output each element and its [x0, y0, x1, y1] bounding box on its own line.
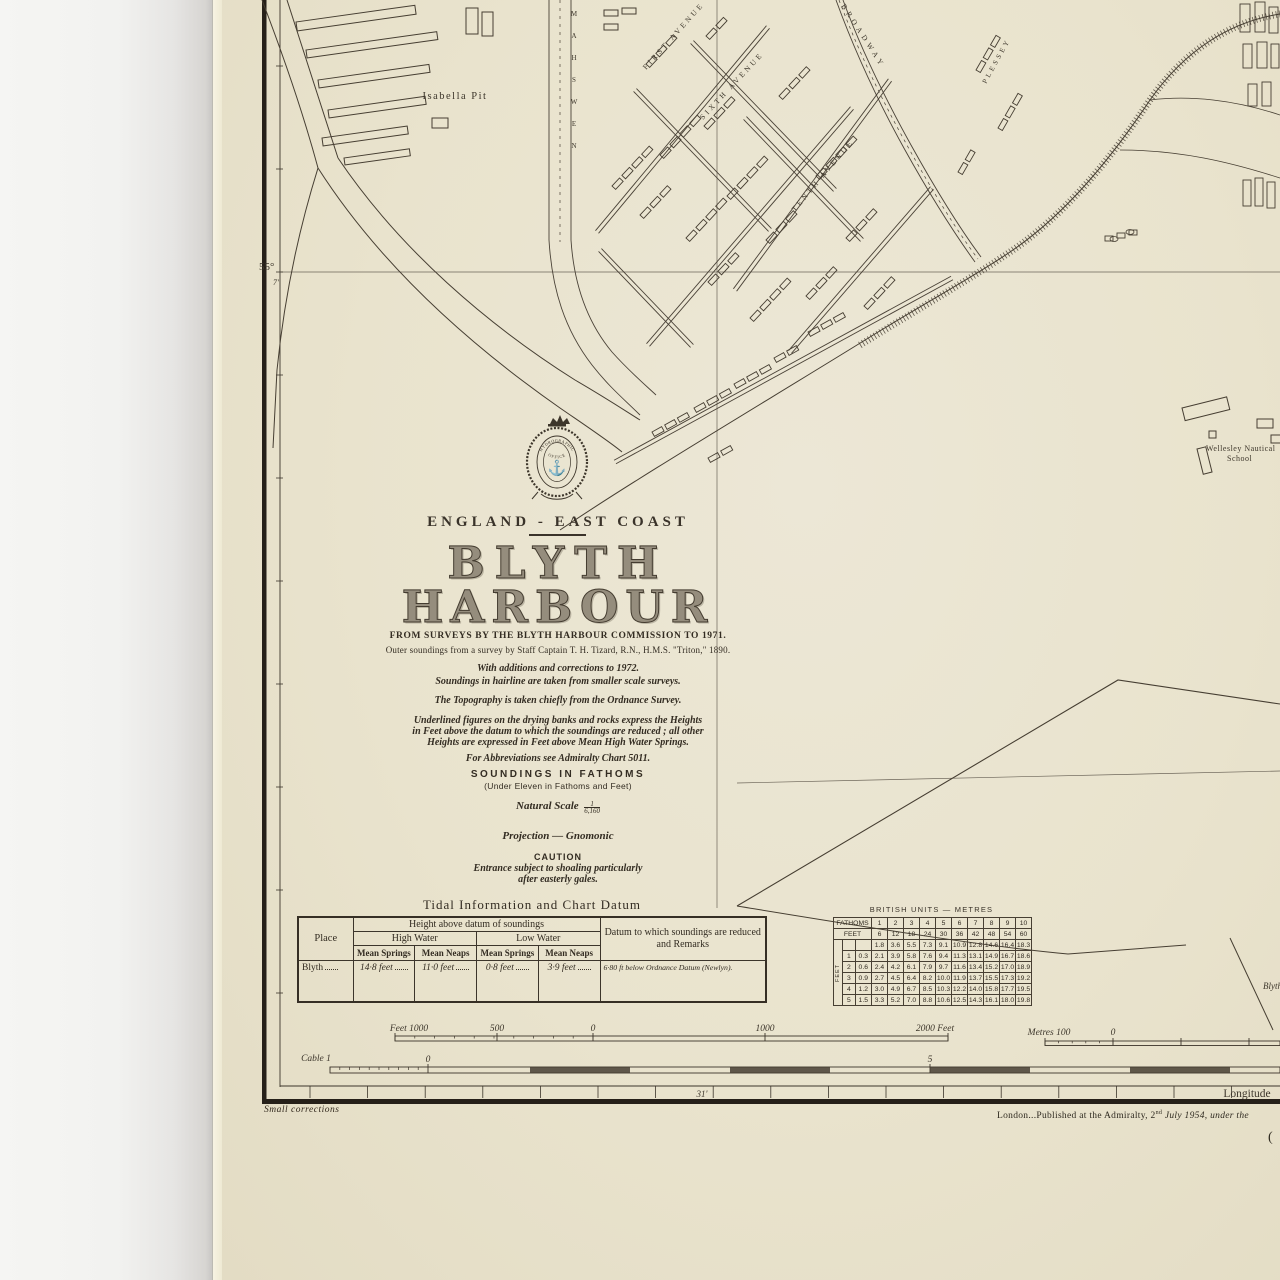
conv-cell: 14.9 — [984, 951, 1000, 962]
conv-cell: 18 — [904, 929, 920, 940]
conv-cell: 12.2 — [952, 984, 968, 995]
conv-cell: 16.4 — [1000, 940, 1016, 951]
conv-cell: 6.1 — [904, 962, 920, 973]
tidal-hw-springs-value: 14·8 feet — [353, 960, 415, 1002]
conv-cell: 8.2 — [920, 973, 936, 984]
conv-cell: 19.5 — [1016, 984, 1032, 995]
conv-cell: 2.4 — [872, 962, 888, 973]
svg-text:OFFICE: OFFICE — [547, 452, 566, 459]
street-lines — [595, 26, 952, 464]
conv-cell: 0.9 — [855, 973, 871, 984]
wellesley-label-1: Wellesley Nautical — [1206, 444, 1276, 453]
newsham-letter: H — [571, 54, 576, 62]
conv-cell: 17.0 — [1000, 962, 1016, 973]
conv-cell: 7.6 — [920, 951, 936, 962]
conv-cell: 2 — [888, 918, 904, 929]
conv-cell: 10.0 — [936, 973, 952, 984]
source-line-1: FROM SURVEYS BY THE BLYTH HARBOUR COMMIS… — [340, 631, 776, 641]
conv-cell: 5.5 — [904, 940, 920, 951]
isabella-pit-label: Isabella Pit — [423, 91, 488, 102]
chart-photo: HYDROGRAPHIC OFFICE ⚓ Isabella Pit MAHSW… — [0, 0, 1280, 1280]
conv-cell: 1 — [872, 918, 888, 929]
tidal-col-datum: Datum to which soundings are reduced and… — [600, 917, 766, 960]
tidal-col-mean-springs-lw: Mean Springs — [477, 945, 539, 960]
conv-cell: 5 — [936, 918, 952, 929]
soundings-heading: SOUNDINGS IN FATHOMS — [340, 769, 776, 780]
newsham-letter: E — [572, 120, 576, 128]
newsham-letter: M — [571, 10, 578, 18]
conv-cell: 16.7 — [1000, 951, 1016, 962]
terrace-row — [652, 413, 689, 437]
conv-cell: 17.3 — [1000, 973, 1016, 984]
longitude-tick-label: 31' — [696, 1089, 709, 1099]
caution-heading: CAUTION — [340, 852, 776, 862]
tidal-datum-value: 6·80 ft below Ordnance Datum (Newlyn). — [600, 960, 766, 1002]
misc-buildings — [1105, 2, 1279, 241]
chart-sheet: HYDROGRAPHIC OFFICE ⚓ Isabella Pit MAHSW… — [222, 0, 1280, 1280]
conv-cell: 12.8 — [968, 940, 984, 951]
newsham-letter: W — [571, 98, 578, 106]
conv-cell: 1.8 — [872, 940, 888, 951]
conv-cell: 30 — [936, 929, 952, 940]
terrace-row — [706, 17, 727, 39]
conv-cell: 4 — [843, 984, 855, 995]
terrace-row — [640, 186, 671, 219]
heights-note-1: Underlined figures on the drying banks a… — [392, 715, 724, 726]
latitude-minutes-label: 7' — [273, 278, 279, 287]
conv-cell: 14.0 — [968, 984, 984, 995]
conv-cell: 18.9 — [1016, 962, 1032, 973]
anchor-icon: ⚓ — [548, 459, 567, 477]
corrections-line-2: Soundings in hairline are taken from sma… — [340, 676, 776, 687]
terrace-row — [998, 93, 1022, 130]
scale-bar-labels: Feet 1000 500 0 1000 2000 Feet Metres 10… — [301, 1024, 1116, 1065]
first-avenue-label: FIRST AVENUE — [641, 0, 706, 71]
tidal-col-mean-neaps-hw: Mean Neaps — [415, 945, 477, 960]
conv-cell: 15.2 — [984, 962, 1000, 973]
paren-fragment: ( — [1268, 1130, 1273, 1146]
heights-note-3: Heights are expressed in Feet above Mean… — [392, 737, 724, 748]
tidal-lw-springs-value: 0·8 feet — [477, 960, 539, 1002]
tidal-col-mean-neaps-lw: Mean Neaps — [538, 945, 600, 960]
feet-2000-label: 2000 Feet — [916, 1024, 955, 1034]
region-label: ENGLAND - EAST COAST — [380, 514, 736, 531]
terrace-row — [750, 278, 791, 321]
tidal-col-low-water: Low Water — [477, 931, 601, 945]
conv-cell: 5.2 — [888, 995, 904, 1006]
conversion-table: FATHOMS12345678910FEET612182430364248546… — [833, 917, 1032, 1006]
conv-cell: 14.6 — [984, 940, 1000, 951]
svg-text:HYDROGRAPHIC: HYDROGRAPHIC — [538, 438, 576, 452]
conv-cell — [843, 940, 855, 951]
conv-cell: 3.0 — [872, 984, 888, 995]
conv-cell: 12 — [888, 929, 904, 940]
conv-cell: 4.5 — [888, 973, 904, 984]
building-terraces — [612, 17, 1022, 462]
conv-cell: 9 — [1000, 918, 1016, 929]
terrace-row — [864, 277, 895, 310]
tidal-col-mean-springs-hw: Mean Springs — [353, 945, 415, 960]
conv-cell: 6.7 — [904, 984, 920, 995]
corrections-line-1: With additions and corrections to 1972. — [340, 663, 776, 674]
terrace-row — [779, 67, 810, 100]
projection-note: Projection — Gnomonic — [340, 830, 776, 842]
conv-cell: 10 — [1016, 918, 1032, 929]
conv-cell: 0.3 — [855, 951, 871, 962]
conv-fathoms-label: FATHOMS — [834, 918, 872, 929]
conv-cell: 8 — [984, 918, 1000, 929]
conv-cell: 11.9 — [952, 973, 968, 984]
natural-scale: Natural Scale 16,160 — [340, 800, 776, 814]
terrace-row — [612, 146, 653, 189]
latitude-degrees-label: 55° — [259, 261, 274, 273]
conv-cell: 3.3 — [872, 995, 888, 1006]
scale-fraction: 16,160 — [584, 801, 600, 814]
conv-cell: 42 — [968, 929, 984, 940]
conv-cell: 7.3 — [920, 940, 936, 951]
conv-cell: 9.7 — [936, 962, 952, 973]
conv-cell: 1 — [843, 951, 855, 962]
tidal-data-row: Blyth 14·8 feet 11·0 feet 0·8 feet 3·9 f… — [298, 960, 766, 1002]
tidal-col-height-group: Height above datum of soundings — [353, 917, 600, 931]
railway-hatching — [860, 14, 1280, 345]
metres-0-label: 0 — [1111, 1028, 1116, 1038]
conv-cell: 2.1 — [872, 951, 888, 962]
source-line-2: Outer soundings from a survey by Staff C… — [340, 645, 776, 655]
tidal-lw-neaps-value: 3·9 feet — [538, 960, 600, 1002]
tidal-table-title: Tidal Information and Chart Datum — [382, 897, 682, 913]
conversion-table-title: BRITISH UNITS — METRES — [833, 905, 1030, 914]
cable-5-label: 5 — [928, 1055, 933, 1065]
conv-cell: 18.3 — [1016, 940, 1032, 951]
conv-cell: 48 — [984, 929, 1000, 940]
conv-cell: 11.3 — [952, 951, 968, 962]
conv-cell: 17.7 — [1000, 984, 1016, 995]
conv-cell: 8.5 — [920, 984, 936, 995]
crown-icon — [550, 415, 570, 424]
conv-cell: 18.6 — [1016, 951, 1032, 962]
conv-cell: 6.4 — [904, 973, 920, 984]
conv-cell: 19.2 — [1016, 973, 1032, 984]
conv-cell: 1.2 — [855, 984, 871, 995]
wall-background — [0, 0, 212, 1280]
terrace-row — [774, 346, 799, 363]
caution-line-2: after easterly gales. — [430, 874, 686, 885]
terrace-row — [806, 267, 837, 300]
publication-note: London...Published at the Admiralty, 2nd… — [997, 1110, 1280, 1121]
conv-cell: 6 — [952, 918, 968, 929]
conv-cell: 24 — [920, 929, 936, 940]
newsham-letter: S — [572, 76, 576, 84]
cable-label: Cable 1 — [301, 1054, 331, 1064]
conv-cell: 3.9 — [888, 951, 904, 962]
feet-1000r-label: 1000 — [756, 1024, 775, 1034]
conv-cell: 5.8 — [904, 951, 920, 962]
railway-lines — [262, 0, 1280, 530]
region-underline — [529, 534, 586, 536]
terrace-row — [708, 253, 739, 286]
conv-cell: 4.2 — [888, 962, 904, 973]
paper-edge — [212, 0, 222, 1280]
terrace-row — [708, 446, 733, 463]
wellesley-label-2: School — [1227, 454, 1253, 463]
conv-cell: 14.3 — [968, 995, 984, 1006]
conv-cell: 11.6 — [952, 962, 968, 973]
feet-500-label: 500 — [490, 1024, 505, 1034]
conv-cell: 9.1 — [936, 940, 952, 951]
conv-cell: 5 — [843, 995, 855, 1006]
conv-cell: 9.4 — [936, 951, 952, 962]
conv-cell: 13.7 — [968, 973, 984, 984]
conv-cell: 15.5 — [984, 973, 1000, 984]
conv-cell: 15.8 — [984, 984, 1000, 995]
conv-cell: 7.0 — [904, 995, 920, 1006]
scale-bars — [330, 1033, 1280, 1073]
conv-cell: 10.6 — [936, 995, 952, 1006]
terrace-row — [694, 389, 731, 413]
abbreviations-note: For Abbreviations see Admiralty Chart 50… — [340, 753, 776, 764]
conv-cell: 7.9 — [920, 962, 936, 973]
topography-note: The Topography is taken chiefly from the… — [340, 695, 776, 706]
soundings-subheading: (Under Eleven in Fathoms and Feet) — [340, 781, 776, 791]
newsham-road — [549, 0, 656, 415]
tidal-hw-neaps-value: 11·0 feet — [415, 960, 477, 1002]
conv-cell: 10.9 — [952, 940, 968, 951]
conv-feet-label: FEET — [834, 929, 872, 940]
chart-paper: HYDROGRAPHIC OFFICE ⚓ Isabella Pit MAHSW… — [222, 0, 1280, 1280]
metres-label: Metres 100 — [1027, 1028, 1071, 1038]
conv-cell: 19.8 — [1016, 995, 1032, 1006]
conv-cell: 36 — [952, 929, 968, 940]
conv-cell: 1.5 — [855, 995, 871, 1006]
conv-cell: 8.8 — [920, 995, 936, 1006]
conv-cell: 3.6 — [888, 940, 904, 951]
terrace-row — [958, 150, 975, 175]
conv-cell: 13.1 — [968, 951, 984, 962]
conv-cell — [855, 940, 871, 951]
newsham-letter: N — [571, 142, 576, 150]
conv-cell: 18.0 — [1000, 995, 1016, 1006]
ribbon — [532, 492, 582, 499]
cable-0-label: 0 — [426, 1055, 431, 1065]
caution-line-1: Entrance subject to shoaling particularl… — [430, 863, 686, 874]
conv-cell: 2 — [843, 962, 855, 973]
hydrographic-office-crest: HYDROGRAPHIC OFFICE ⚓ — [527, 415, 587, 499]
conv-cell: 16.1 — [984, 995, 1000, 1006]
terrace-row — [808, 313, 845, 337]
heights-note-2: in Feet above the datum to which the sou… — [392, 726, 724, 737]
small-corrections-note: Small corrections — [264, 1105, 339, 1115]
conv-side-label: FEET — [834, 940, 843, 1006]
conv-cell: 60 — [1016, 929, 1032, 940]
conv-cell: 3 — [904, 918, 920, 929]
terrace-row — [727, 156, 768, 199]
tidal-place-value: Blyth — [298, 960, 353, 1002]
blyth-partial-label: Blyth — [1263, 981, 1280, 991]
ponds — [1110, 230, 1134, 242]
conv-cell: 6 — [872, 929, 888, 940]
conv-cell: 10.3 — [936, 984, 952, 995]
feet-0-label: 0 — [591, 1024, 596, 1034]
chart-title-line2: HARBOUR — [340, 582, 776, 633]
broadway-road — [836, 0, 981, 262]
conv-cell: 7 — [968, 918, 984, 929]
conv-cell: 0.6 — [855, 962, 871, 973]
conv-cell: 4.9 — [888, 984, 904, 995]
newsham-letter: A — [571, 32, 576, 40]
longitude-label: Longitude — [1223, 1088, 1270, 1100]
feet-1000l-label: Feet 1000 — [389, 1024, 429, 1034]
newsham-road-label: MAHSWEN — [571, 10, 578, 150]
conv-cell: 13.4 — [968, 962, 984, 973]
terrace-row — [686, 198, 727, 241]
colliery-buildings — [296, 5, 636, 165]
conv-cell: 2.7 — [872, 973, 888, 984]
tidal-col-high-water: High Water — [353, 931, 477, 945]
tidal-table: Place Height above datum of soundings Da… — [297, 916, 767, 1003]
conv-cell: 12.5 — [952, 995, 968, 1006]
tidal-col-place: Place — [298, 917, 353, 960]
conv-cell: 4 — [920, 918, 936, 929]
conv-cell: 54 — [1000, 929, 1016, 940]
conv-cell: 3 — [843, 973, 855, 984]
